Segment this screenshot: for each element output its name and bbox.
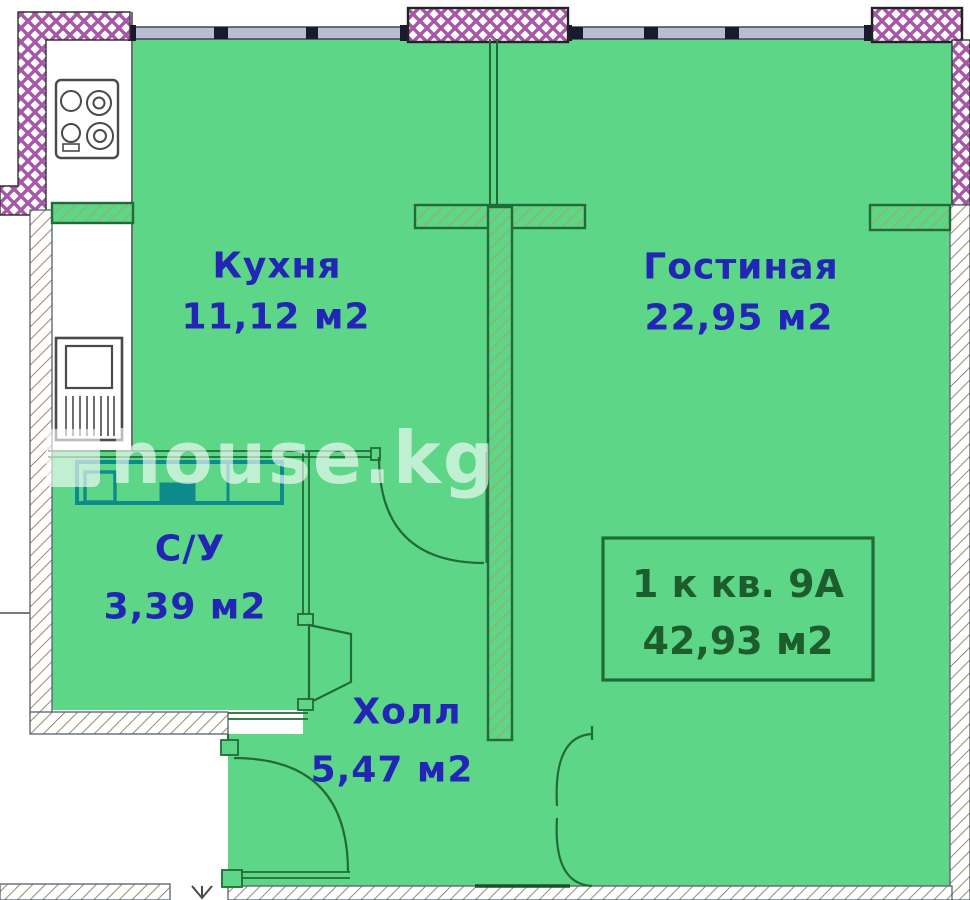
- door-jamb: [221, 740, 238, 755]
- hall-name-label: Холл: [352, 692, 461, 733]
- door-opening-area: [488, 740, 512, 888]
- kitchen-name-label: Кухня: [212, 246, 341, 287]
- stove-icon: [56, 80, 118, 158]
- neighbor-door-mark: [192, 886, 212, 898]
- kitchen-counter: [48, 12, 133, 452]
- bathroom-area-label: 3,39 м2: [104, 587, 267, 628]
- unit-label-text: 1 к кв. 9А: [632, 562, 844, 606]
- wall-bathroom-bottom: [30, 712, 228, 734]
- living-room-name-label: Гостиная: [643, 247, 838, 288]
- fridge-icon: [56, 338, 122, 440]
- door-jamb: [222, 870, 242, 887]
- bathroom-name-label: С/У: [155, 529, 225, 570]
- unit-area-text: 42,93 м2: [643, 619, 834, 663]
- beam-right: [870, 205, 950, 230]
- living-room-area-label: 22,95 м2: [645, 298, 834, 339]
- kitchen-area-label: 11,12 м2: [182, 297, 371, 338]
- exterior-pier-top-center: [408, 8, 568, 42]
- partition-gap: [490, 39, 497, 207]
- window-left: [134, 27, 404, 39]
- wall-hall-living: [488, 207, 512, 740]
- beam-kitchen-left: [52, 203, 133, 223]
- door-jamb: [298, 699, 313, 710]
- window-right: [568, 27, 868, 39]
- wall-left: [30, 210, 52, 714]
- wall-bottom-left: [0, 884, 170, 900]
- floor-plan-drawing: [0, 0, 970, 900]
- floor-plan-page: Кухня 11,12 м2 Гостиная 22,95 м2 С/У 3,3…: [0, 0, 970, 900]
- sink-basin: [160, 483, 195, 504]
- hall-area-label: 5,47 м2: [311, 750, 474, 791]
- exterior-wall-right-upper: [952, 40, 970, 205]
- wall-right: [950, 205, 970, 900]
- door-jamb: [298, 614, 313, 625]
- wall-bottom: [228, 886, 952, 900]
- living-room-area: [497, 39, 952, 888]
- exterior-pier-top-right: [872, 8, 962, 42]
